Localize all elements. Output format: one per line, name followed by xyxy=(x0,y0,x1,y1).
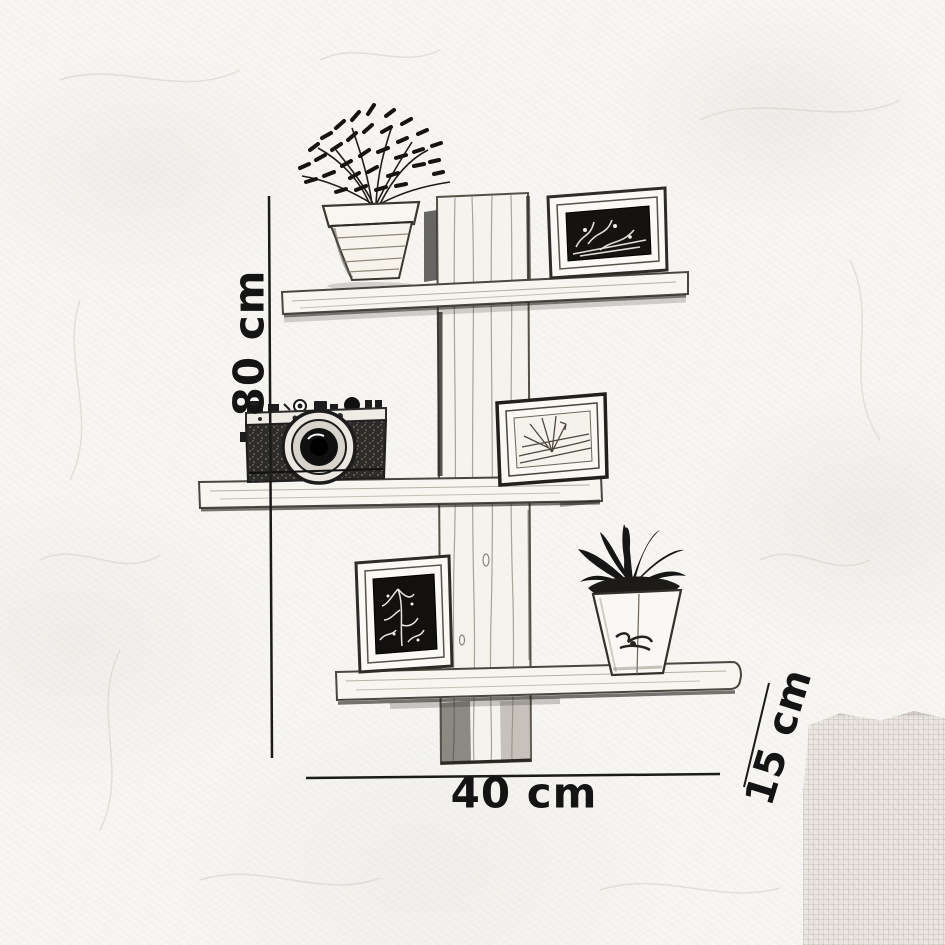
picture-frame-dark-portrait xyxy=(356,556,452,672)
sketch-canvas: 80 cm 40 cm 15 cm xyxy=(0,0,945,945)
picture-frame-dark-landscape xyxy=(548,188,667,278)
potted-plant-aloe xyxy=(578,524,686,675)
height-dimension-label: 80 cm xyxy=(225,270,274,417)
width-dimension-label: 40 cm xyxy=(451,769,598,818)
picture-frame-light-landscape xyxy=(497,394,607,485)
